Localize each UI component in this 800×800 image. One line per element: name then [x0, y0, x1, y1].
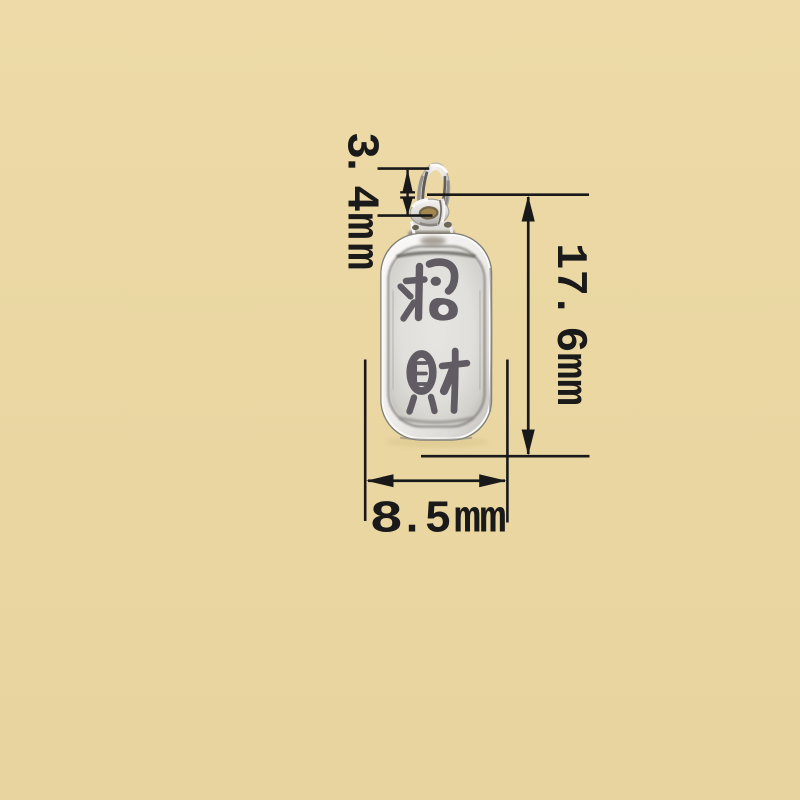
svg-text:3.4mm: 3.4mm — [335, 132, 386, 270]
svg-text:.5mm: .5mm — [399, 495, 507, 546]
svg-text:17.6mm: 17.6mm — [544, 243, 594, 406]
